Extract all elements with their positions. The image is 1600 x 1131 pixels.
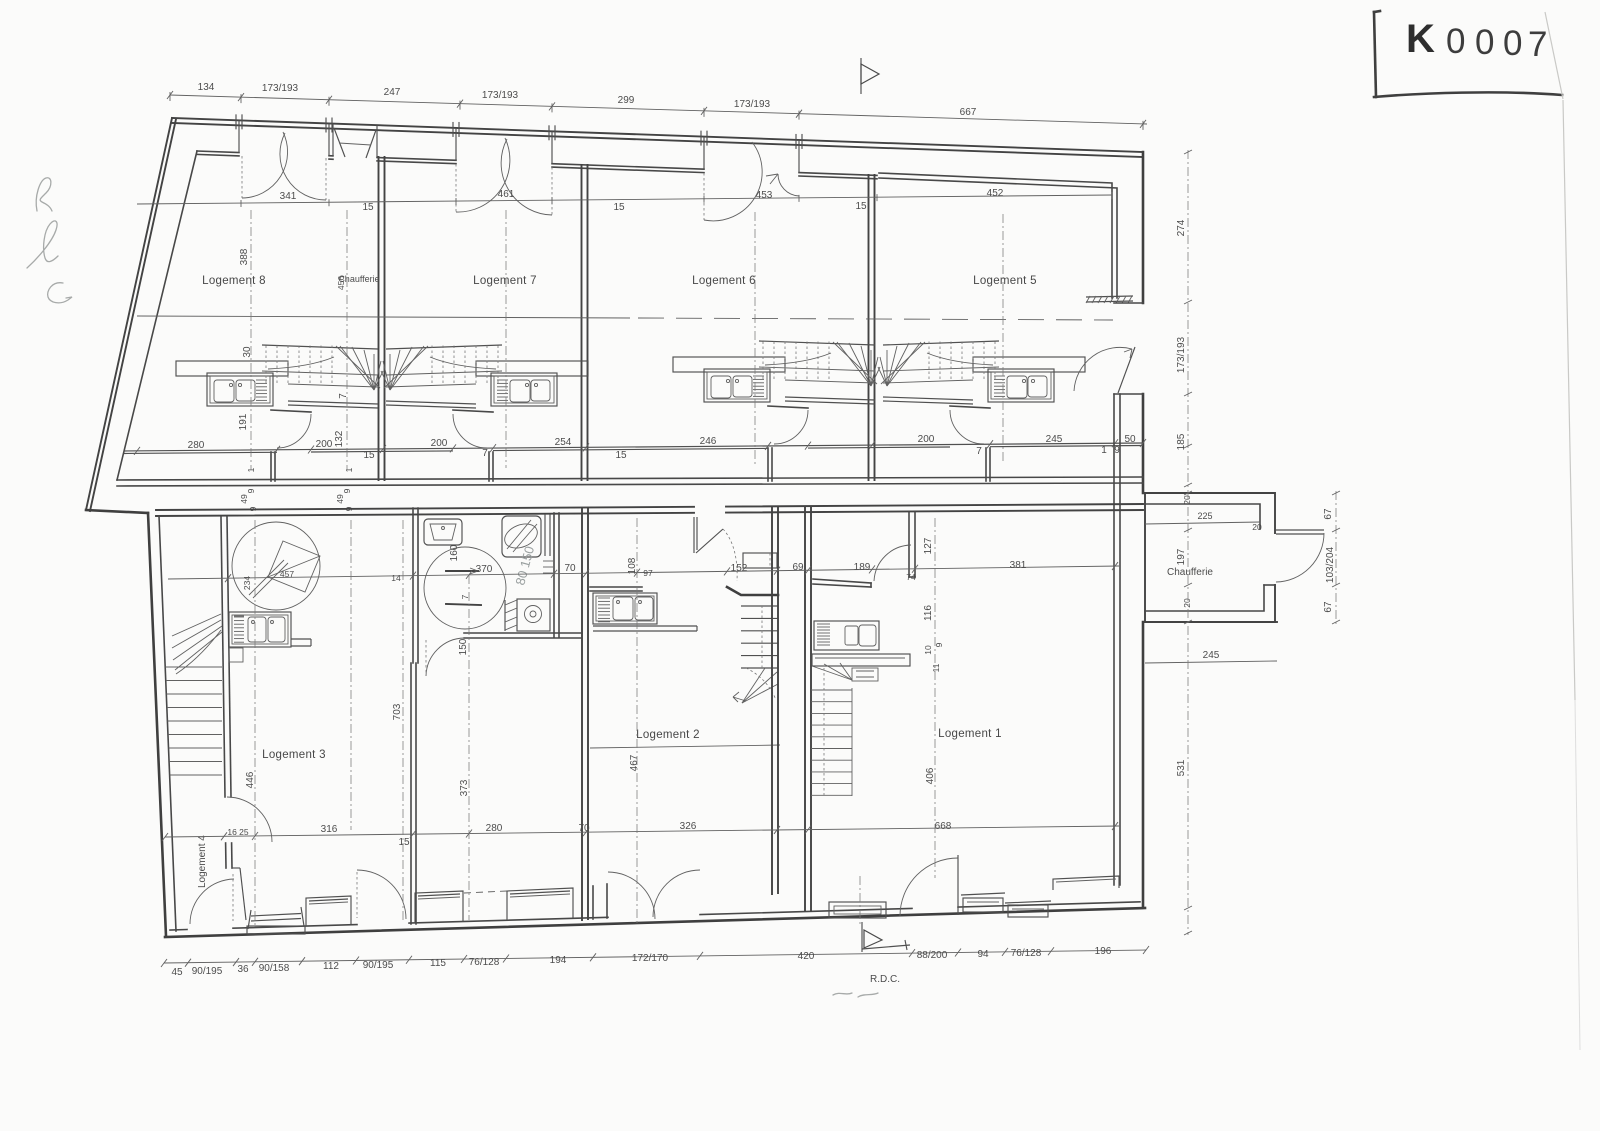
svg-text:69: 69 <box>792 562 804 573</box>
svg-text:150: 150 <box>458 638 469 655</box>
svg-text:703: 703 <box>392 703 403 720</box>
svg-text:225: 225 <box>1197 511 1212 521</box>
svg-text:45: 45 <box>171 967 183 978</box>
svg-text:173/193: 173/193 <box>734 99 771 110</box>
svg-text:15: 15 <box>398 837 410 848</box>
svg-text:112: 112 <box>323 961 339 972</box>
svg-text:185: 185 <box>1176 433 1187 450</box>
svg-text:189: 189 <box>854 562 871 573</box>
svg-text:16 25: 16 25 <box>227 827 249 837</box>
svg-text:197: 197 <box>1176 548 1187 565</box>
svg-text:200: 200 <box>316 439 333 450</box>
svg-text:67: 67 <box>1323 601 1334 613</box>
svg-text:173/193: 173/193 <box>262 83 299 94</box>
svg-text:9: 9 <box>934 642 944 647</box>
svg-text:316: 316 <box>321 824 338 835</box>
svg-text:246: 246 <box>700 436 717 447</box>
svg-text:94: 94 <box>977 949 989 960</box>
svg-text:K: K <box>1406 17 1435 61</box>
svg-text:160: 160 <box>449 544 460 561</box>
svg-text:20: 20 <box>1252 522 1262 532</box>
svg-text:74: 74 <box>906 572 916 582</box>
svg-text:200: 200 <box>918 434 935 445</box>
svg-text:667: 667 <box>960 107 977 118</box>
svg-text:15: 15 <box>363 450 375 461</box>
svg-text:452: 452 <box>987 188 1004 199</box>
svg-text:370: 370 <box>476 564 493 575</box>
svg-text:0: 0 <box>1503 24 1522 63</box>
svg-text:134: 134 <box>198 82 215 93</box>
svg-text:467: 467 <box>629 754 640 771</box>
svg-text:90/195: 90/195 <box>363 960 394 971</box>
svg-text:194: 194 <box>550 955 567 966</box>
svg-text:50: 50 <box>1124 434 1136 445</box>
svg-text:326: 326 <box>680 821 697 832</box>
svg-text:299: 299 <box>618 95 635 106</box>
svg-text:7: 7 <box>1528 25 1547 64</box>
svg-text:Logement 1: Logement 1 <box>938 728 1002 740</box>
svg-text:461: 461 <box>498 189 515 200</box>
svg-text:49: 49 <box>239 494 249 504</box>
svg-text:7: 7 <box>976 446 982 457</box>
svg-text:Logement 5: Logement 5 <box>973 275 1037 287</box>
svg-text:10: 10 <box>923 645 933 655</box>
svg-text:280: 280 <box>486 823 503 834</box>
svg-text:341: 341 <box>280 191 297 202</box>
svg-text:115: 115 <box>430 958 446 969</box>
svg-text:200: 200 <box>431 438 448 449</box>
svg-text:80 150: 80 150 <box>512 544 537 586</box>
svg-text:7: 7 <box>460 594 470 599</box>
svg-text:0: 0 <box>1446 22 1465 61</box>
svg-text:196: 196 <box>1095 946 1112 957</box>
svg-text:406: 406 <box>925 767 936 784</box>
svg-text:127: 127 <box>923 537 934 554</box>
svg-text:67: 67 <box>1323 508 1334 520</box>
svg-text:88/200: 88/200 <box>917 950 948 961</box>
svg-text:76/128: 76/128 <box>469 957 500 968</box>
svg-text:446: 446 <box>245 771 256 788</box>
svg-text:15: 15 <box>362 202 374 213</box>
svg-text:Logement 8: Logement 8 <box>202 275 266 287</box>
svg-text:14: 14 <box>391 573 401 583</box>
svg-text:49: 49 <box>335 494 345 504</box>
svg-text:1: 1 <box>344 467 354 472</box>
svg-text:Logement 7: Logement 7 <box>473 275 537 287</box>
svg-text:173/193: 173/193 <box>482 90 519 101</box>
svg-text:Chaufferie: Chaufferie <box>1167 567 1213 578</box>
svg-text:254: 254 <box>555 437 572 448</box>
svg-text:108: 108 <box>627 557 638 574</box>
svg-text:Logement 4: Logement 4 <box>197 835 208 888</box>
svg-text:245: 245 <box>1046 434 1063 445</box>
svg-text:0: 0 <box>1475 23 1494 62</box>
svg-text:420: 420 <box>798 951 815 962</box>
svg-text:R.D.C.: R.D.C. <box>870 974 900 985</box>
svg-text:76/128: 76/128 <box>1011 948 1042 959</box>
svg-text:173/193: 173/193 <box>1176 336 1187 373</box>
svg-text:Logement 3: Logement 3 <box>262 749 326 761</box>
svg-text:373: 373 <box>459 779 470 796</box>
svg-text:116: 116 <box>923 605 934 621</box>
svg-text:9: 9 <box>246 488 256 493</box>
svg-text:15: 15 <box>613 202 625 213</box>
svg-text:388: 388 <box>239 248 250 265</box>
svg-text:9: 9 <box>342 488 352 493</box>
svg-text:20: 20 <box>1182 495 1192 505</box>
svg-text:1: 1 <box>1101 445 1107 456</box>
svg-text:456: 456 <box>336 276 346 290</box>
svg-text:Logement 2: Logement 2 <box>636 729 700 741</box>
svg-text:15: 15 <box>615 450 627 461</box>
svg-text:15: 15 <box>855 201 867 212</box>
svg-text:90/195: 90/195 <box>192 966 223 977</box>
svg-text:20: 20 <box>1182 598 1192 608</box>
svg-text:191: 191 <box>238 413 249 430</box>
svg-text:11: 11 <box>931 663 941 672</box>
svg-text:36: 36 <box>237 964 249 975</box>
svg-text:274: 274 <box>1176 219 1187 236</box>
svg-text:531: 531 <box>1176 759 1187 776</box>
svg-text:103/204: 103/204 <box>1325 546 1336 583</box>
svg-text:247: 247 <box>384 87 401 98</box>
svg-text:453: 453 <box>756 190 773 201</box>
svg-text:245: 245 <box>1203 650 1220 661</box>
svg-text:97: 97 <box>643 568 653 578</box>
svg-text:Logement 6: Logement 6 <box>692 275 756 287</box>
svg-text:90/158: 90/158 <box>259 963 290 974</box>
svg-text:280: 280 <box>188 440 205 451</box>
svg-text:152: 152 <box>731 563 748 574</box>
svg-text:70: 70 <box>578 823 590 834</box>
svg-text:132: 132 <box>334 430 345 447</box>
svg-text:70: 70 <box>564 563 576 574</box>
svg-text:7: 7 <box>482 448 488 459</box>
svg-text:668: 668 <box>935 821 952 832</box>
svg-text:381: 381 <box>1010 560 1027 571</box>
svg-text:172/170: 172/170 <box>632 953 669 964</box>
